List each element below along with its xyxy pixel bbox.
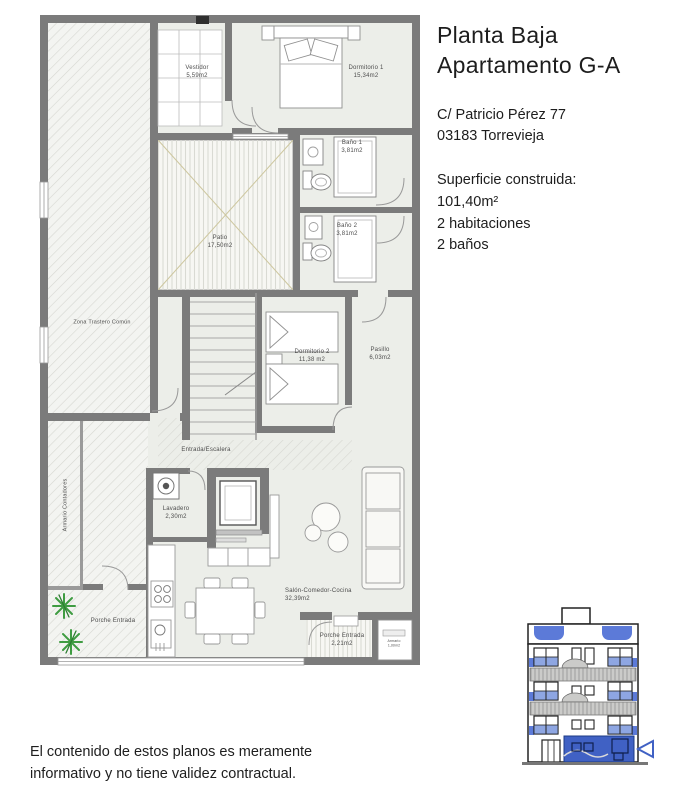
- room-label-salon: Salón-Comedor-Cocina 32,39m2: [285, 588, 352, 604]
- entrada-hatch: [158, 440, 352, 470]
- room-label-zona-trastero: Zona Trastero Común: [73, 319, 130, 326]
- top-wall-box: [196, 16, 209, 24]
- room-label-armario-contadores: Armario Contadores: [62, 479, 69, 532]
- room-label-armario-peq: Armario 1,00m2: [388, 639, 401, 648]
- elevation-ground-highlight: [522, 736, 653, 765]
- dining-set: [185, 578, 265, 644]
- room-label-pasillo: Pasillo 6,03m2: [369, 347, 390, 363]
- room-label-vestidor: Vestidor 5,59m2: [185, 65, 208, 81]
- zona-trastero-hatch: [48, 23, 150, 413]
- room-label-porche-der: Porche Entrada 2,21m2: [320, 633, 365, 649]
- surface-info: Superficie construida: 101,40m² 2 habita…: [437, 170, 682, 257]
- location-arrow-icon: [638, 741, 653, 757]
- floorplan-page: Vestidor 5,59m2 Dormitorio 1 15,34m2 Bañ…: [0, 0, 690, 785]
- room-label-patio: Patio 17,50m2: [208, 235, 233, 251]
- info-panel: Planta Baja Apartamento G-A C/ Patricio …: [437, 20, 682, 257]
- room-label-lavadero: Lavadero 2,30m2: [163, 506, 190, 522]
- washing-machine-icon: [153, 473, 179, 499]
- page-title: Planta Baja Apartamento G-A: [437, 20, 682, 81]
- room-label-bano2: Baño 2 3,81m2: [336, 223, 357, 239]
- building-elevation: [522, 608, 653, 765]
- room-label-dormitorio1: Dormitorio 1 15,34m2: [348, 65, 383, 81]
- room-label-porche-izq: Porche Entrada: [91, 618, 136, 626]
- elevator: [216, 481, 262, 542]
- patio-area: [158, 140, 293, 290]
- room-label-entrada: Entrada/Escalera: [181, 447, 230, 455]
- room-label-bano1: Baño 1 3,81m2: [341, 140, 362, 156]
- room-label-dormitorio2: Dormitorio 2 11,38 m2: [294, 349, 329, 365]
- disclaimer: El contenido de estos planos es merament…: [30, 741, 312, 785]
- address: C/ Patricio Pérez 77 03183 Torrevieja: [437, 105, 682, 149]
- plan: [40, 15, 420, 665]
